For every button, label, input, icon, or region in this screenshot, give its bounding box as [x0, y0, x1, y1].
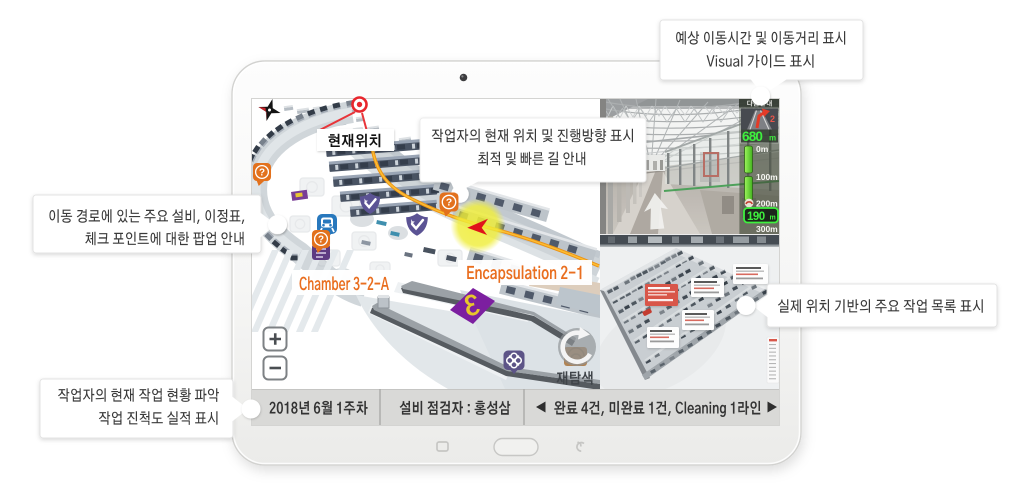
svg-text:m: m: [770, 214, 776, 221]
svg-text:2: 2: [770, 114, 775, 124]
svg-text:0m: 0m: [756, 144, 769, 154]
svg-text:300m: 300m: [756, 224, 778, 234]
svg-text:200m: 200m: [756, 199, 778, 209]
svg-text:680: 680: [742, 129, 762, 144]
svg-text:190: 190: [747, 211, 765, 223]
svg-text:?: ?: [259, 167, 265, 178]
svg-text:100m: 100m: [756, 172, 778, 182]
svg-text:m: m: [769, 134, 776, 143]
svg-text:?: ?: [318, 234, 324, 245]
svg-text:?: ?: [446, 198, 452, 209]
